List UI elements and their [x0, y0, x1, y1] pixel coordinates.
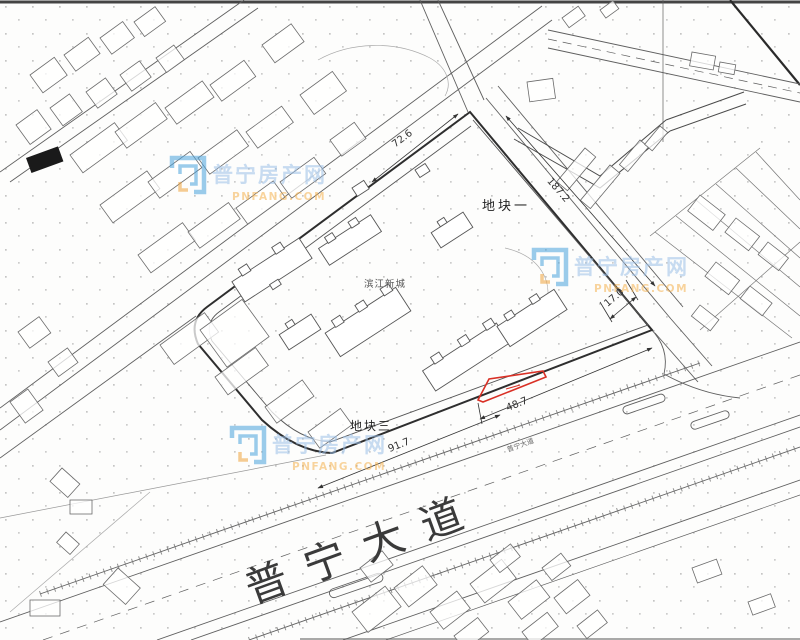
watermark-domain: PNFANG.COM	[292, 461, 386, 473]
watermark-domain: PNFANG.COM	[594, 283, 688, 295]
label-complex: 滨江新城	[364, 278, 406, 290]
building	[70, 500, 92, 514]
watermark-title: 普宁房产网	[272, 433, 387, 457]
watermark-title: 普宁房产网	[574, 255, 689, 279]
cadastral-map: 72.6 187.2 17.0 48.7 91.7 地块一 地块三 滨江新城 普…	[0, 0, 800, 640]
building	[30, 600, 60, 616]
label-plot3: 地块三	[350, 419, 392, 433]
watermark-domain: PNFANG.COM	[232, 191, 326, 203]
map-canvas: 72.6 187.2 17.0 48.7 91.7 地块一 地块三 滨江新城 普…	[0, 0, 800, 640]
label-plot1: 地块一	[482, 199, 530, 214]
watermark-title: 普宁房产网	[212, 163, 327, 187]
building	[527, 78, 556, 101]
